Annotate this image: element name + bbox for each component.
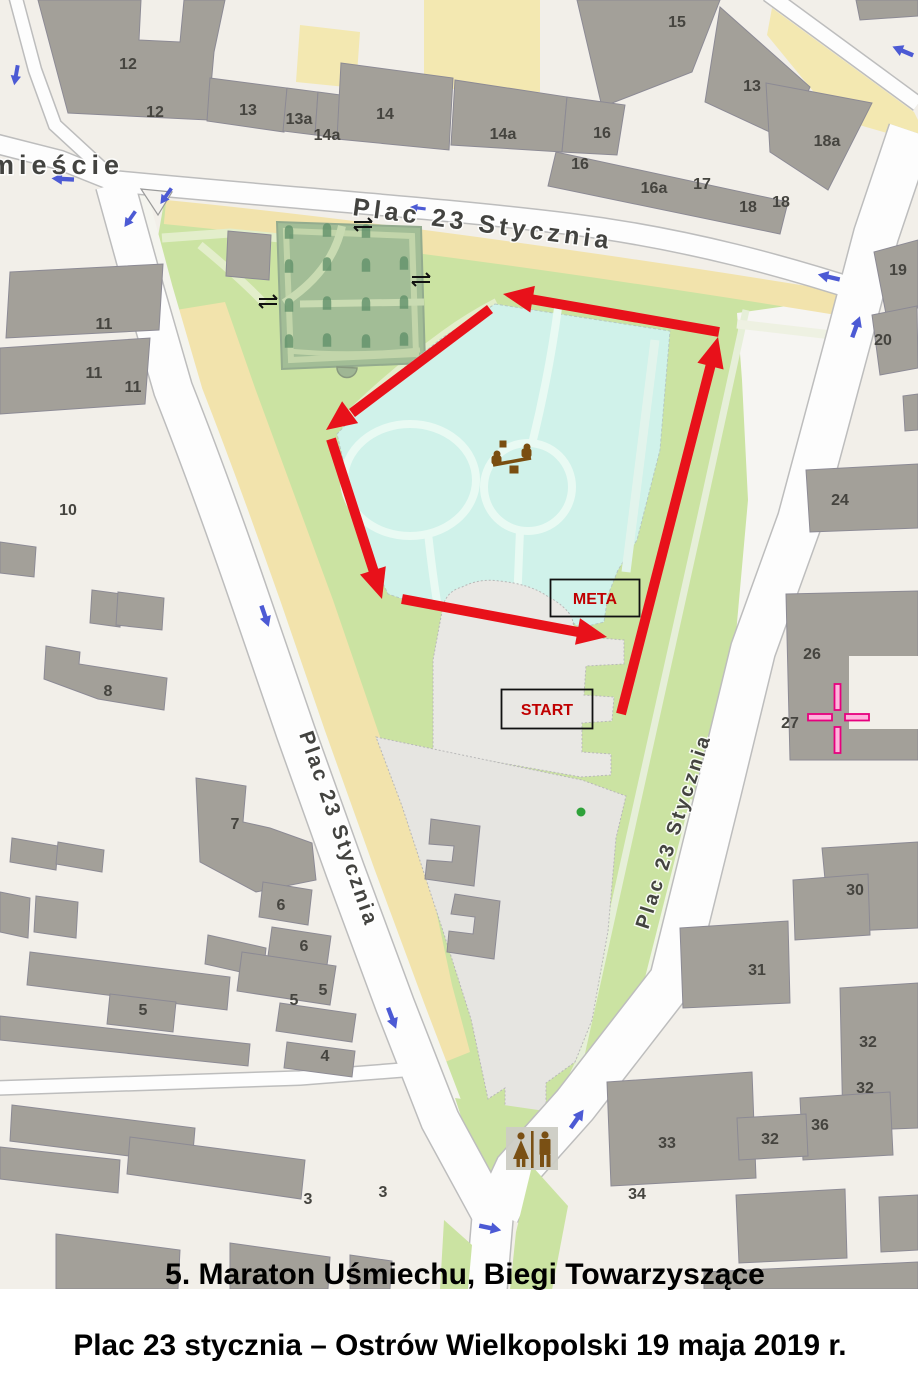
- svg-text:16: 16: [571, 156, 589, 173]
- svg-text:36: 36: [811, 1117, 829, 1134]
- svg-text:31: 31: [748, 962, 766, 979]
- svg-text:27: 27: [781, 715, 799, 732]
- svg-text:20: 20: [874, 332, 892, 349]
- svg-text:5. Maraton Uśmiechu, Biegi Tow: 5. Maraton Uśmiechu, Biegi Towarzyszące: [165, 1258, 765, 1291]
- svg-text:34: 34: [628, 1186, 646, 1203]
- svg-text:6: 6: [300, 938, 309, 955]
- svg-text:START: START: [521, 702, 573, 719]
- svg-text:12: 12: [146, 104, 164, 121]
- svg-text:4: 4: [321, 1048, 330, 1065]
- svg-text:14a: 14a: [314, 127, 341, 144]
- svg-text:13: 13: [239, 102, 257, 119]
- svg-text:3: 3: [379, 1184, 388, 1201]
- svg-text:13a: 13a: [286, 111, 313, 128]
- svg-text:11: 11: [125, 379, 142, 396]
- svg-text:mieście: mieście: [0, 150, 124, 180]
- svg-text:32: 32: [761, 1131, 779, 1148]
- svg-text:15: 15: [668, 14, 686, 31]
- svg-text:14a: 14a: [490, 126, 517, 143]
- svg-text:14: 14: [376, 106, 394, 123]
- svg-text:16: 16: [593, 125, 611, 142]
- svg-text:19: 19: [889, 262, 907, 279]
- svg-text:30: 30: [846, 882, 864, 899]
- svg-text:18: 18: [772, 194, 790, 211]
- svg-text:META: META: [573, 591, 618, 608]
- svg-text:11: 11: [96, 316, 113, 333]
- svg-text:13: 13: [743, 78, 761, 95]
- svg-text:32: 32: [859, 1034, 877, 1051]
- svg-text:11: 11: [86, 365, 103, 382]
- svg-text:16a: 16a: [641, 180, 668, 197]
- svg-text:26: 26: [803, 646, 821, 663]
- svg-text:5: 5: [319, 982, 328, 999]
- svg-text:18: 18: [739, 199, 757, 216]
- svg-text:33: 33: [658, 1135, 676, 1152]
- svg-text:10: 10: [59, 502, 77, 519]
- svg-text:32: 32: [856, 1080, 874, 1097]
- svg-text:12: 12: [119, 56, 137, 73]
- svg-text:5: 5: [139, 1002, 148, 1019]
- svg-text:5: 5: [290, 992, 299, 1009]
- svg-text:18a: 18a: [814, 133, 841, 150]
- svg-text:7: 7: [231, 816, 240, 833]
- svg-text:3: 3: [304, 1191, 313, 1208]
- svg-text:6: 6: [277, 897, 286, 914]
- svg-text:24: 24: [831, 492, 849, 509]
- svg-text:Plac 23 stycznia – Ostrów Wiel: Plac 23 stycznia – Ostrów Wielkopolski 1…: [73, 1329, 846, 1362]
- svg-text:17: 17: [693, 176, 711, 193]
- svg-text:8: 8: [104, 683, 113, 700]
